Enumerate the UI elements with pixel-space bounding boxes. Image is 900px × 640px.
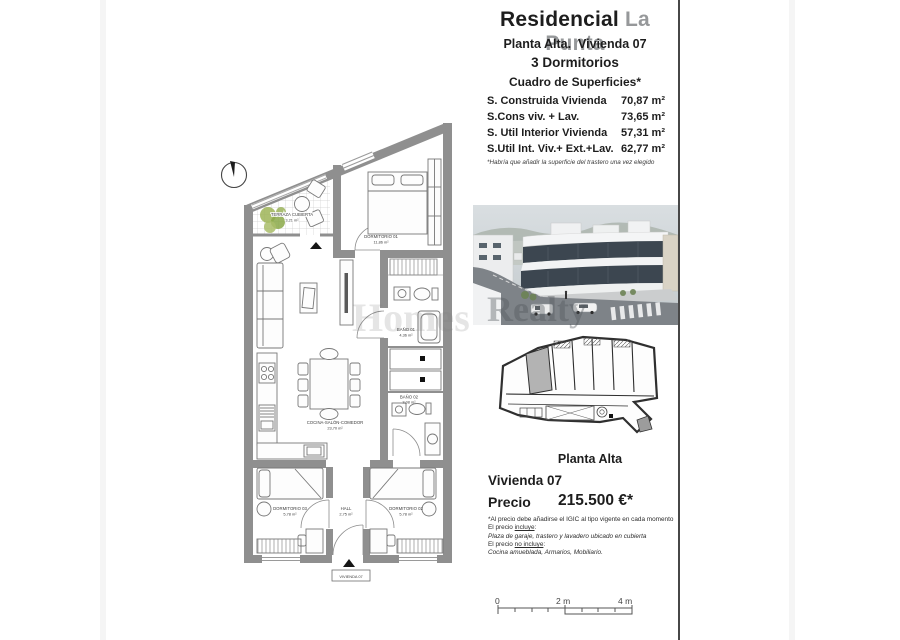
scale-2m: 2 m <box>556 596 570 606</box>
note-includes-detail: Plaza de garaje, trastero y lavadero ubi… <box>488 533 678 541</box>
bedroom1-furniture <box>368 159 441 245</box>
panel-divider <box>678 0 680 640</box>
building-photo <box>473 205 678 325</box>
scale-4m: 4 m <box>618 596 632 606</box>
table-row: S. Construida Vivienda 70,87 m² <box>487 93 665 109</box>
unit-tag-label: VIVIENDA 07 <box>339 574 362 579</box>
note-excludes: El precio no incluye: <box>488 541 678 549</box>
room-label-dorm1: DORMITORIO 01 <box>364 234 398 239</box>
surface-footnote: *Habría que añadir la superficie del tra… <box>487 159 672 166</box>
table-row: S. Util Interior Vivienda 57,31 m² <box>487 125 665 141</box>
terrace-door-arrow-icon <box>310 242 322 249</box>
price-notes: *Al precio debe añadirse el IGIC al tipo… <box>488 516 678 557</box>
room-label-dorm3: DORMITORIO 03 <box>273 506 307 511</box>
subtitle-cuadro: Cuadro de Superficies* <box>470 75 680 89</box>
svg-text:23,70 m²: 23,70 m² <box>327 426 343 431</box>
subtitle-planta: Planta Alta. Vivienda 07 <box>470 37 680 51</box>
dining-set <box>298 349 360 420</box>
title-main: Residencial <box>500 8 619 31</box>
room-label-cocina: COCINA-SALÓN-COMEDOR <box>307 420 364 425</box>
table-row: S.Util Int. Viv.+ Ext.+Lav. 62,77 m² <box>487 141 665 157</box>
price-label: Precio <box>488 494 531 510</box>
room-label-dorm2: DORMITORIO 02 <box>389 506 423 511</box>
floorplan-drawing: VIVIENDA 07 TERRAZA CUBIERTA 3,21 m² DOR… <box>180 95 470 595</box>
keyplan-drawing <box>488 332 665 446</box>
room-label-bano1: BAÑO 01 <box>397 327 416 332</box>
svg-text:5,78 m²: 5,78 m² <box>283 512 297 517</box>
svg-text:4,36 m²: 4,36 m² <box>399 333 413 338</box>
room-label-terraza: TERRAZA CUBIERTA <box>271 212 313 217</box>
entry-arrow-icon <box>343 559 355 567</box>
pricing-unit: Vivienda 07 <box>488 473 562 488</box>
note-excludes-detail: Cocina amueblada, Armarios, Mobiliario. <box>488 549 678 557</box>
scale-0: 0 <box>495 596 500 606</box>
svg-text:3,08 m²: 3,08 m² <box>402 400 416 405</box>
van-icon <box>531 304 553 316</box>
person-icon <box>565 291 567 299</box>
unit-tag: VIVIENDA 07 <box>332 570 370 581</box>
north-compass-icon <box>222 161 247 188</box>
bathroom2-fixtures <box>392 403 440 455</box>
scan-edge-left <box>100 0 106 640</box>
note-includes: El precio incluye: <box>488 524 678 532</box>
svg-text:2,75 m²: 2,75 m² <box>339 512 353 517</box>
svg-text:11,86 m²: 11,86 m² <box>373 240 389 245</box>
room-label-hall: HALL <box>341 506 352 511</box>
keyplan-highlighted-unit <box>526 347 552 394</box>
wardrobe-hatched <box>390 259 437 275</box>
scale-bar: 0 2 m 4 m <box>492 595 640 621</box>
table-row: S.Cons viv. + Lav. 73,65 m² <box>487 109 665 125</box>
hall-closets <box>390 349 441 390</box>
price-value: 215.500 €* <box>558 492 633 510</box>
surface-table: S. Construida Vivienda 70,87 m² S.Cons v… <box>487 93 665 157</box>
subtitle-dormitorios: 3 Dormitorios <box>470 55 680 70</box>
living-furniture <box>257 242 353 348</box>
svg-text:5,78 m²: 5,78 m² <box>399 512 413 517</box>
page: VIVIENDA 07 TERRAZA CUBIERTA 3,21 m² DOR… <box>0 0 900 640</box>
note-tax: *Al precio debe añadirse el IGIC al tipo… <box>488 516 678 524</box>
scan-edge-right <box>789 0 795 640</box>
keyplan-caption: Planta Alta <box>490 452 690 466</box>
svg-text:3,21 m²: 3,21 m² <box>285 218 299 223</box>
